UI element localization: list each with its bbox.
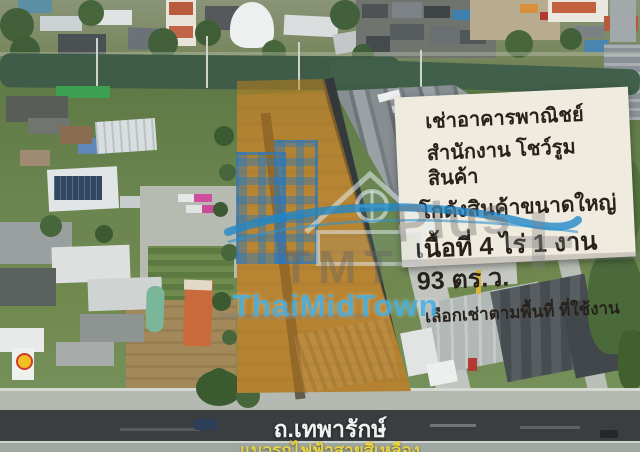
sign-line-2: สำนักงาน โชว์รูมสินค้า [426,133,620,192]
tree [40,215,62,237]
tree [95,225,113,243]
tree [330,0,360,30]
terracotta-roof [552,2,596,13]
sign-line-1: เช่าอาคารพาณิชย์ [425,101,618,135]
roof [430,26,460,44]
tower-building [610,0,636,42]
tree [221,244,238,261]
power-pole [206,36,208,88]
tree [213,202,228,217]
sign-line-3: โกดังสินค้าขนาดใหญ่ [419,190,622,226]
warehouse-roof [95,118,157,154]
terracotta-roof [169,2,193,15]
tree [222,330,237,345]
roof [390,24,424,40]
power-pole [96,38,98,86]
roof [20,150,50,166]
sign-area-line: เนื้อที่ 4 ไร่ 1 งาน 93 ตร.ว. [415,225,626,297]
solar-panels [54,176,102,200]
roof [0,268,56,306]
roof [56,342,114,366]
lane-marking [520,426,580,429]
listing-sign-card: เช่าอาคารพาณิชย์ สำนักงาน โชว์รูมสินค้า … [394,87,636,268]
power-pole [420,50,422,92]
car [600,430,618,438]
tree [219,164,236,181]
truck [520,4,538,13]
tree [212,292,231,311]
roof [362,4,388,18]
listing-photo: ถ.เทพารักษ์ แนวรถไฟฟ้าสายสีเหลือง เช่าอา… [0,0,640,452]
tree [196,370,242,406]
truck [194,194,212,202]
roof [58,34,106,54]
tree [78,0,104,26]
railway-line-label: แนวรถไฟฟ้าสายสีเหลือง [195,437,465,452]
tree [214,126,234,146]
roof [60,126,92,144]
tree [618,330,640,390]
shell-logo-icon [16,353,33,370]
lane-marking [120,428,200,431]
roof [80,314,144,342]
roof [40,16,82,31]
green-wagon [145,286,165,333]
roof [184,280,212,291]
truck [468,358,477,371]
roof [424,6,450,18]
roof [392,2,422,18]
truck [178,194,194,202]
tree [195,20,221,46]
blue-roof [452,10,472,20]
tree [560,28,582,50]
truck [186,205,202,213]
